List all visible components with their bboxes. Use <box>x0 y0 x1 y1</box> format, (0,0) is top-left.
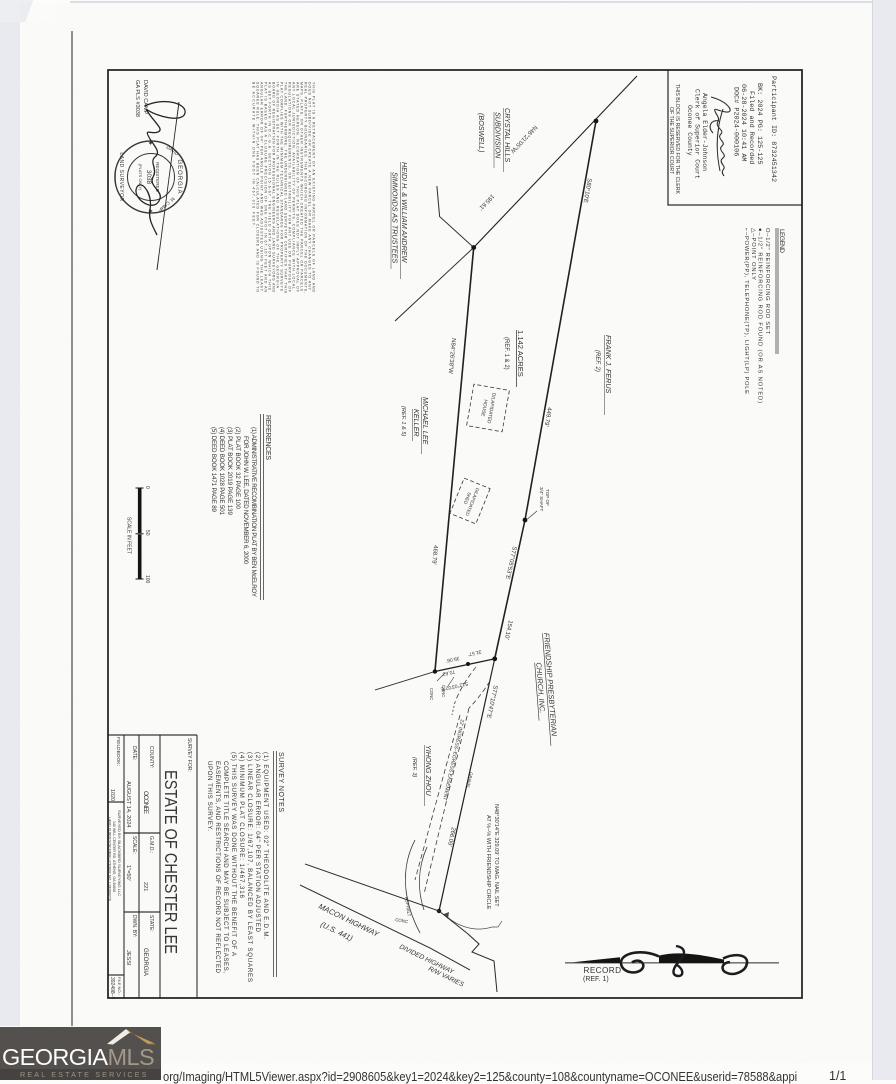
svg-text:O–1/2" REINFORCING ROD SET: O–1/2" REINFORCING ROD SET <box>764 228 770 334</box>
svg-text:195.61': 195.61' <box>477 193 495 211</box>
svg-text:468.79': 468.79' <box>430 545 438 565</box>
svg-text:CONC: CONC <box>441 685 446 697</box>
svg-text:AUGUST 14, 2024: AUGUST 14, 2024 <box>125 781 131 828</box>
svg-text:ASPHALT: ASPHALT <box>404 896 412 917</box>
svg-text:221: 221 <box>142 882 148 891</box>
svg-text:DATE:: DATE: <box>131 746 137 760</box>
svg-text:BK: 2024 PG: 125-125: BK: 2024 PG: 125-125 <box>755 83 763 165</box>
svg-text:(2) PLAT BOOK 32 PAGE 100: (2) PLAT BOOK 32 PAGE 100 <box>234 427 241 510</box>
svg-text:REGULATIONS OR REQUIREMENTS, O: REGULATIONS OR REQUIREMENTS, OR SUITABIL… <box>288 82 292 292</box>
svg-text:TOP OF: TOP OF <box>545 489 550 506</box>
svg-text:31.57': 31.57' <box>468 648 482 657</box>
svg-text:FILE NO.:: FILE NO.: <box>117 977 122 995</box>
svg-text:N48°30'14"E 329.09' TO MAG. NA: N48°30'14"E 329.09' TO MAG. NAIL SET <box>493 804 499 907</box>
svg-text:Filed and Recorded: Filed and Recorded <box>747 91 755 164</box>
svg-text:(5) DEED BOOK 1471 PAGE 89: (5) DEED BOOK 1471 PAGE 89 <box>210 427 217 513</box>
svg-text:HEIDI H. & WILLIAM ANDREW: HEIDI H. & WILLIAM ANDREW <box>400 162 409 264</box>
svg-text:Oconee County: Oconee County <box>686 105 693 156</box>
svg-text:DWN. BY:: DWN. BY: <box>131 915 137 938</box>
svg-text:GEORGIA: GEORGIA <box>142 948 149 977</box>
svg-text:KELLER: KELLER <box>412 409 421 437</box>
svg-text:Participant ID: 8732451342: Participant ID: 8732451342 <box>769 76 777 182</box>
svg-text:OCONEE: OCONEE <box>142 791 149 814</box>
svg-text:SCALE IN FEET: SCALE IN FEET <box>126 517 132 554</box>
svg-text:0: 0 <box>144 486 150 489</box>
svg-text:(REF. 2): (REF. 2) <box>594 350 600 372</box>
svg-text:(BOSWELL): (BOSWELL) <box>477 113 486 153</box>
svg-text:1020: 1020 <box>109 789 115 801</box>
svg-text:RECORD: RECORD <box>584 966 622 975</box>
svg-text:392498–⅛: 392498–⅛ <box>109 977 115 999</box>
svg-text:Angela Elder-Johnson: Angela Elder-Johnson <box>701 93 708 171</box>
svg-text:(2) ANGULAR ERROR: 04" PER STA: (2) ANGULAR ERROR: 04" PER STATION ADJUS… <box>254 752 261 933</box>
svg-text:YIHONG ZHOU: YIHONG ZHOU <box>424 745 433 797</box>
svg-text:50: 50 <box>144 530 150 536</box>
svg-text:COUNTY:: COUNTY: <box>148 746 154 768</box>
svg-text:PLAT IS BASED HAS A CLOSURE PR: PLAT IS BASED HAS A CLOSURE PRECISION OF… <box>264 82 268 292</box>
svg-text:3038: 3038 <box>145 170 152 185</box>
svg-text:FOR JOHN W. LEE, DATED NOVEMBE: FOR JOHN W. LEE, DATED NOVEMBER 6, 2000 <box>242 436 249 565</box>
svg-text:LAND SURVEYOR: LAND SURVEYOR <box>118 152 124 201</box>
svg-text:CONC: CONC <box>395 917 409 924</box>
svg-text:SQUARES RULE. THIS PLAT HAS BE: SQUARES RULE. THIS PLAT HAS BEEN CALCULA… <box>256 82 260 292</box>
svg-text:REFERENCES: REFERENCES <box>264 415 271 460</box>
svg-text:EASEMENTS, AND RESTRICTIONS OF: EASEMENTS, AND RESTRICTIONS OF RECORD NO… <box>214 761 221 974</box>
svg-text:COMPLETE TITLE SEARCH AND MAY: COMPLETE TITLE SEARCH AND MAY BE SUBJECT… <box>222 761 229 973</box>
svg-text:AT ℅–℅ WITH FRIENDSHIP CIRCLE: AT ℅–℅ WITH FRIENDSHIP CIRCLE <box>485 815 491 910</box>
svg-text:SURVEY NOTES: SURVEY NOTES <box>277 752 284 812</box>
svg-text:(1) ADMINISTRATIVE RECOMBINATI: (1) ADMINISTRATIVE RECOMBINATION PLAT BY… <box>250 427 257 597</box>
svg-text:SURVEYED BY: BLACKBIRD SURVEY: SURVEYED BY: BLACKBIRD SURVEYING LLC <box>117 810 122 896</box>
svg-text:3/4" SHAFT: 3/4" SHAFT <box>539 487 544 512</box>
svg-text:GA PLS #3038: GA PLS #3038 <box>134 80 140 117</box>
svg-text:THE LAND. FURTHERMORE, THE UND: THE LAND. FURTHERMORE, THE UNDERSIGNED L… <box>284 82 288 294</box>
svg-text:SUBDIVISION: SUBDIVISION <box>494 112 503 159</box>
svg-text:06-28-2024 10:41 AM: 06-28-2024 10:41 AM <box>739 84 747 162</box>
svg-text:1.142 ACRES: 1.142 ACRES <box>516 330 525 377</box>
svg-text:IN GEORGIA AS SET FORTH IN THE: IN GEORGIA AS SET FORTH IN THE RULES AND… <box>276 82 280 289</box>
svg-text:PLAT COMPLIES WITH THE MINIMUM: PLAT COMPLIES WITH THE MINIMUM TECHNICAL… <box>280 82 284 292</box>
svg-text:DOES NOT SUBDIVIDE OR CREATE A: DOES NOT SUBDIVIDE OR CREATE A NEW PARCE… <box>308 82 312 291</box>
svg-text:(4) DEED BOOK 1028 PAGE 501: (4) DEED BOOK 1028 PAGE 501 <box>218 427 225 516</box>
svg-text:OF THE SUPERIOR COURT: OF THE SUPERIOR COURT <box>668 107 674 175</box>
svg-text:N84°26'38"W: N84°26'38"W <box>447 338 456 374</box>
svg-text:(4) MINIMUM PLAT CLOSURE: 1/46: (4) MINIMUM PLAT CLOSURE: 1/467,316 <box>238 752 245 899</box>
svg-text:GRAVEL: GRAVEL <box>465 772 474 790</box>
svg-text:(PLATS ONLY): (PLATS ONLY) <box>138 164 143 191</box>
svg-text:THIS PLAT IS A RETRACEMENT OF: THIS PLAT IS A RETRACEMENT OF AN EXISTIN… <box>312 82 316 292</box>
svg-text:DILAPIDATED: DILAPIDATED <box>485 392 496 424</box>
svg-text:(3) PLAT BOOK 2019 PAGE 139: (3) PLAT BOOK 2019 PAGE 139 <box>226 427 233 516</box>
svg-text:140 WILL CENTER RD. ATHENS, G: 140 WILL CENTER RD. ATHENS, GA 30606 <box>112 821 116 892</box>
svg-text:(REF. 1): (REF. 1) <box>583 976 609 983</box>
svg-text:LAND SURVEYOR FIRM LICENSE NO.: LAND SURVEYOR FIRM LICENSE NO. LSF000776 <box>108 817 112 901</box>
svg-text:154.10': 154.10' <box>503 620 513 640</box>
svg-text:⌐–POWER(PP), TELEPHONE(TP), LI: ⌐–POWER(PP), TELEPHONE(TP), LIGHT(LP) PO… <box>743 228 749 394</box>
svg-text:ESTATE OF CHESTER LEE: ESTATE OF CHESTER LEE <box>161 770 181 954</box>
svg-text:1"=50': 1"=50' <box>125 865 131 881</box>
svg-text:Clerk of Superior Court: Clerk of Superior Court <box>694 89 701 179</box>
svg-text:G.M.D.:: G.M.D.: <box>148 836 154 853</box>
svg-text:SCALE:: SCALE: <box>131 836 137 854</box>
svg-text:N46°21'05"W: N46°21'05"W <box>509 124 538 154</box>
svg-text:△–POINT ONLY: △–POINT ONLY <box>750 228 756 280</box>
svg-text:(REF. 1 & 5): (REF. 1 & 5) <box>400 406 406 436</box>
svg-text:22' INGRESS–EGRESS EASEMENT: 22' INGRESS–EGRESS EASEMENT <box>441 719 465 801</box>
svg-text:100: 100 <box>144 575 150 584</box>
svg-text:(5) THIS SURVEY WAS DONE WITHO: (5) THIS SURVEY WAS DONE WITHOUT THE BEN… <box>230 752 237 957</box>
svg-text:FIELDBOOK:: FIELDBOOK: <box>115 737 121 766</box>
svg-text:(REF. 3): (REF. 3) <box>411 757 417 778</box>
svg-text:GEORGIA: GEORGIA <box>176 159 182 194</box>
svg-text:S77°10'47"E: S77°10'47"E <box>485 685 498 719</box>
svg-text:(3) LINEAR CLOSURE: 1/67,107,: (3) LINEAR CLOSURE: 1/67,107, BALANCED B… <box>246 752 253 982</box>
svg-text:UPON THIS SURVEY.: UPON THIS SURVEY. <box>206 761 213 831</box>
svg-text:REAL PROPERTY BOUNDARIES. THE: REAL PROPERTY BOUNDARIES. THE RECORDING … <box>304 82 308 293</box>
svg-text:THIS BLOCK IS RESERVED FOR THE: THIS BLOCK IS RESERVED FOR THE CLERK <box>674 84 680 194</box>
svg-text:CRYSTAL HILLS: CRYSTAL HILLS <box>503 108 512 162</box>
svg-text:BOARD OF REGISTRATION FOR PROF: BOARD OF REGISTRATION FOR PROFESSIONAL E… <box>272 82 276 292</box>
svg-text:JESSI: JESSI <box>125 950 131 966</box>
svg-text:STATE:: STATE: <box>148 915 154 932</box>
svg-text:(REF. 1 & 2): (REF. 1 & 2) <box>503 337 509 370</box>
svg-text:MICHAEL LEE: MICHAEL LEE <box>421 397 430 445</box>
svg-text:SURVEY FOR:: SURVEY FOR: <box>186 738 192 772</box>
svg-text:LEGEND: LEGEND <box>778 229 785 253</box>
svg-text:ANGULAR ERROR OF 04" PER ANGLE: ANGULAR ERROR OF 04" PER ANGLE POINT AND… <box>260 82 264 292</box>
svg-text:●–1/2" REINFORCING ROD FOUND (: ●–1/2" REINFORCING ROD FOUND (OR AS NOTE… <box>757 228 763 403</box>
svg-text:MAPS, PLATS, OR OTHER INSTRUME: MAPS, PLATS, OR OTHER INSTRUMENTS WHICH … <box>300 82 304 292</box>
svg-text:ANY LOCAL JURISDICTION, AVAILA: ANY LOCAL JURISDICTION, AVAILABILITY OF … <box>292 82 296 289</box>
svg-text:DOC# P2024-000106: DOC# P2024-000106 <box>732 87 740 156</box>
svg-text:ARE STATED HEREON. RECORDATION: ARE STATED HEREON. RECORDATION OF THIS P… <box>296 82 300 292</box>
svg-text:FRANK J. FERUS: FRANK J. FERUS <box>604 335 613 394</box>
svg-text:AS SET FORTH IN O.C.G.A. SECTI: AS SET FORTH IN O.C.G.A. SECTION 15-6-67… <box>268 82 272 291</box>
svg-text:(1) EQUIPMENT USED: 02" THEODO: (1) EQUIPMENT USED: 02" THEODOLITE AND E… <box>262 752 269 939</box>
svg-text:CONC: CONC <box>429 688 434 700</box>
svg-text:39.06': 39.06' <box>446 655 460 664</box>
svg-text:SIMMONDS AS TRUSTEES: SIMMONDS AS TRUSTEES <box>391 172 400 263</box>
